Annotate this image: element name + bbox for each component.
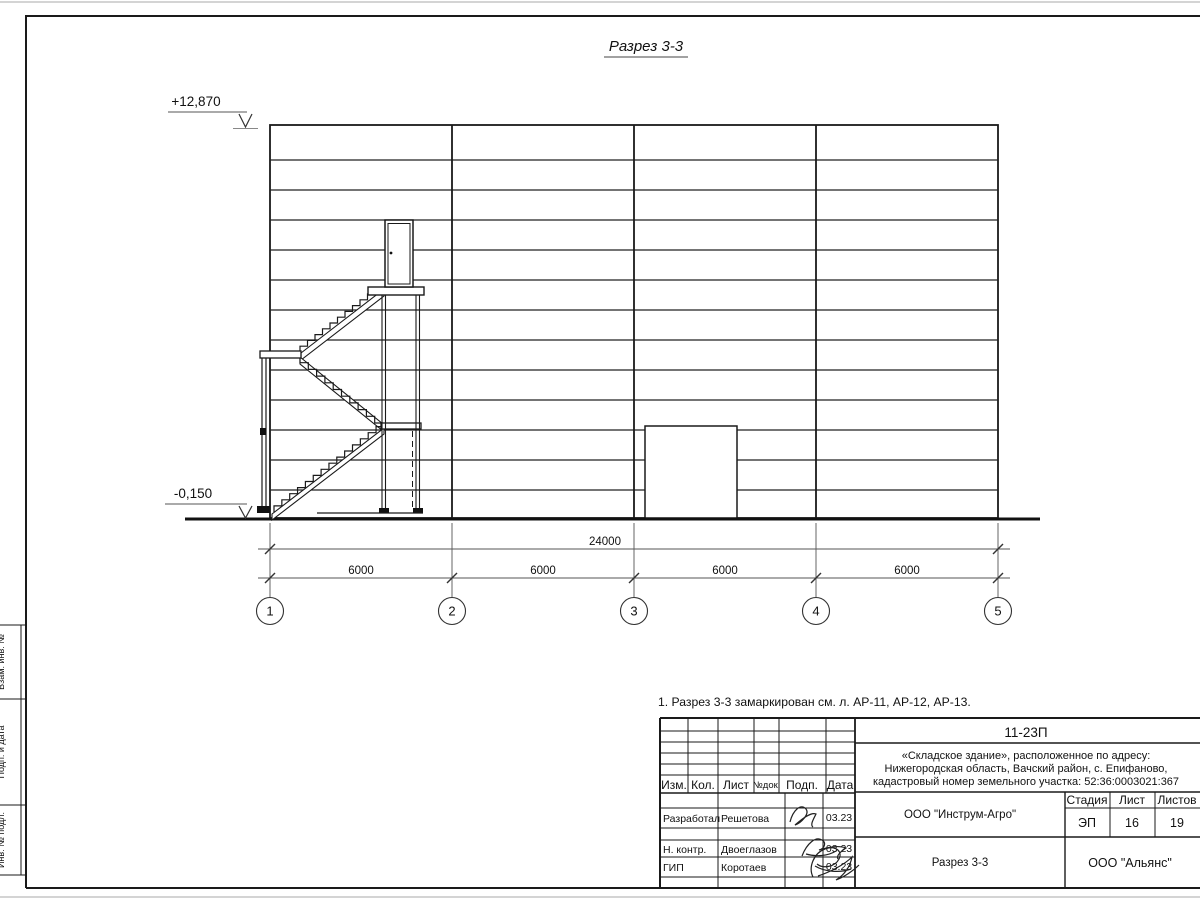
axis-5: 5 xyxy=(994,604,1001,619)
stair-column-bracket xyxy=(260,428,266,435)
left-border-labels: Взам. инв. № Подп. и дата Инв. № подл. xyxy=(0,634,6,868)
col-podp: Подп. xyxy=(786,778,818,792)
title-block-header-labels: Изм. Кол. Лист №док. Подп. Дата xyxy=(661,778,853,792)
sheet-label: Лист xyxy=(1119,793,1146,807)
gate-opening xyxy=(645,426,737,518)
door-knob xyxy=(390,252,393,255)
row2-role: Н. контр. xyxy=(663,844,706,856)
dim-span-1: 6000 xyxy=(348,565,374,577)
extension-lines xyxy=(270,523,998,597)
border-label-vzam: Взам. инв. № xyxy=(0,634,6,690)
project-line1: «Складское здание», расположенное по адр… xyxy=(902,750,1151,762)
org2: ООО "Альянс" xyxy=(1088,856,1172,870)
stage-value: ЭП xyxy=(1078,816,1096,830)
mid-landing xyxy=(381,423,421,429)
row1-date: 03.23 xyxy=(826,812,852,824)
border-label-podp: Подп. и дата xyxy=(0,725,6,778)
level-ground-value: -0,150 xyxy=(174,486,212,501)
row1-role: Разработал xyxy=(663,813,720,825)
axis-2: 2 xyxy=(448,604,455,619)
stage-label: Стадия xyxy=(1067,793,1108,807)
title-block-info: 11-23П «Складское здание», расположенное… xyxy=(873,725,1197,870)
post-footing-left xyxy=(379,508,389,513)
axis-numbers: 1 2 3 4 5 xyxy=(266,604,1001,619)
border-label-inv: Инв. № подл. xyxy=(0,812,6,868)
axis-3: 3 xyxy=(630,604,637,619)
dim-span-4: 6000 xyxy=(894,565,920,577)
col-kol: Кол. xyxy=(691,778,715,792)
col-izm: Изм. xyxy=(661,778,687,792)
drawing-name: Разрез 3-3 xyxy=(932,857,988,869)
level-mark-ground: -0,150 xyxy=(165,486,252,518)
level-mark-top: +12,870 xyxy=(168,94,258,129)
row3-name: Коротаев xyxy=(721,862,767,874)
stair-column-footing xyxy=(257,506,270,513)
row1-name: Решетова xyxy=(721,813,769,825)
left-landing xyxy=(260,351,301,358)
org1: ООО "Инструм-Агро" xyxy=(904,809,1016,821)
col-data: Дата xyxy=(827,778,854,792)
signature-reshetova xyxy=(790,807,816,827)
level-top-value: +12,870 xyxy=(171,94,220,109)
col-ndok: №док. xyxy=(753,780,781,791)
top-platform xyxy=(368,287,424,295)
dim-span-2: 6000 xyxy=(530,565,556,577)
sheets-value: 19 xyxy=(1170,816,1184,830)
sheet-value: 16 xyxy=(1125,816,1139,830)
row3-role: ГИП xyxy=(663,862,684,874)
project-line2: Нижегородская область, Вачский район, с.… xyxy=(885,763,1168,775)
project-line3: кадастровый номер земельного участка: 52… xyxy=(873,776,1179,788)
col-list: Лист xyxy=(723,778,750,792)
drawing-note: 1. Разрез 3-3 замаркирован см. л. АР-11,… xyxy=(658,695,971,709)
doc-number: 11-23П xyxy=(1004,725,1047,740)
axis-1: 1 xyxy=(266,604,273,619)
row2-name: Двоеглазов xyxy=(721,844,777,856)
section-title: Разрез 3-3 xyxy=(609,38,684,55)
post-footing-right xyxy=(413,508,423,513)
stair-door xyxy=(385,220,413,287)
drawing-sheet: Взам. инв. № Подп. и дата Инв. № подл. Р… xyxy=(0,0,1200,900)
sheets-label: Листов xyxy=(1158,793,1197,807)
dim-total: 24000 xyxy=(589,536,621,548)
axis-4: 4 xyxy=(812,604,819,619)
dim-span-3: 6000 xyxy=(712,565,738,577)
